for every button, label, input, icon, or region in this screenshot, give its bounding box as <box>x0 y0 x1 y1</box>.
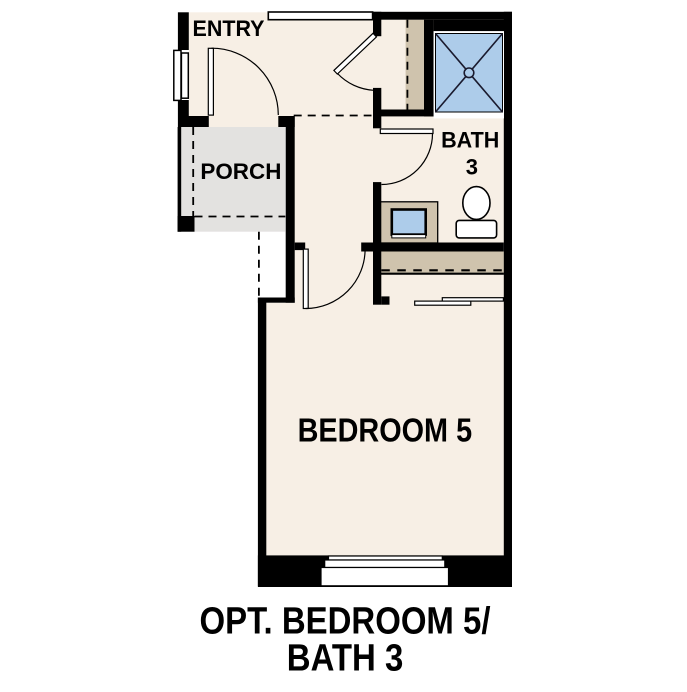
svg-text:3: 3 <box>466 155 478 180</box>
svg-text:BEDROOM 5: BEDROOM 5 <box>298 412 473 449</box>
svg-text:BATH 3: BATH 3 <box>287 637 404 679</box>
svg-text:BATH: BATH <box>441 128 499 153</box>
svg-text:PORCH: PORCH <box>200 159 281 184</box>
svg-text:ENTRY: ENTRY <box>193 16 265 41</box>
